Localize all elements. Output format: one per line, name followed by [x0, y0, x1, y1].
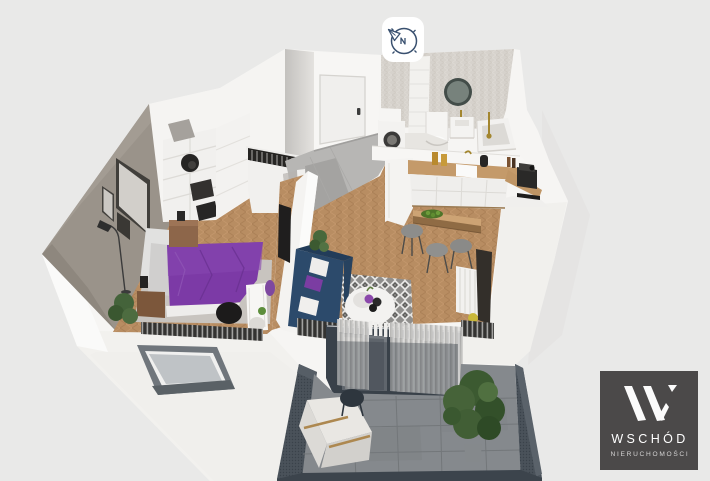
- svg-text:NIERUCHOMOŚCI: NIERUCHOMOŚCI: [611, 449, 690, 458]
- svg-text:WSCHÓD: WSCHÓD: [611, 431, 688, 446]
